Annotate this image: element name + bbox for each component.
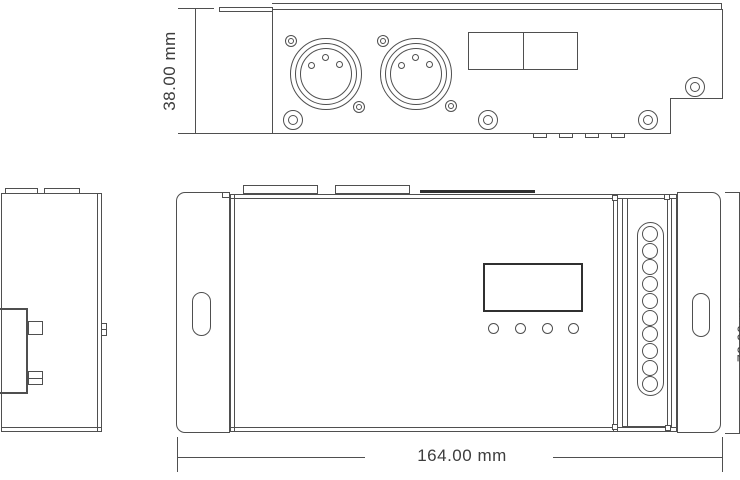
- push-button: [515, 323, 526, 334]
- terminal-panel-inner-line: [667, 198, 668, 427]
- push-button: [488, 323, 499, 334]
- small-screw-icon: [448, 103, 454, 109]
- mounting-slot-right: [692, 293, 710, 337]
- front-body-inner-top-line: [230, 198, 677, 199]
- dimension-end-tick: [178, 8, 214, 9]
- front-body: [230, 194, 677, 432]
- fastener-square: [612, 424, 618, 430]
- xlr-pin: [412, 54, 419, 61]
- small-screw-icon: [380, 38, 386, 44]
- xlr-pin: [322, 54, 329, 61]
- terminal-hole: [642, 276, 658, 292]
- large-screw-icon: [690, 82, 700, 92]
- terminal-hole: [642, 243, 658, 259]
- left-ear-notch: [222, 197, 230, 198]
- terminal-hole: [642, 293, 658, 309]
- front-body-inner-left-line: [234, 194, 235, 432]
- push-button: [542, 323, 553, 334]
- fastener-square: [665, 425, 671, 431]
- technical-drawing-page: 38.00 mm: [0, 0, 740, 480]
- top-view-bottom-tab: [533, 133, 547, 138]
- large-screw-icon: [288, 115, 298, 125]
- top-view-bottom-tab: [559, 133, 573, 138]
- din-clip-top-tab: [28, 321, 43, 335]
- front-top-dark-tab: [420, 190, 535, 193]
- side-view-inner-bottom-line: [1, 427, 102, 428]
- top-view-step-horizontal: [670, 98, 722, 99]
- mounting-slot-left: [192, 292, 211, 336]
- dimension-end-tick: [177, 437, 178, 472]
- front-body-inner-bottom-line: [230, 427, 677, 428]
- terminal-hole: [642, 310, 658, 326]
- top-view-flange-edge: [272, 3, 722, 4]
- terminal-block-divider: [523, 32, 524, 70]
- top-view-left-edge: [272, 9, 273, 133]
- din-clip-bottom-tab-line: [28, 378, 43, 379]
- height-dimension-label: 38.00 mm: [161, 26, 179, 116]
- front-top-tab: [335, 185, 410, 194]
- terminal-hole: [642, 226, 658, 242]
- top-view-bottom-tab: [611, 133, 625, 138]
- small-screw-icon: [356, 104, 362, 110]
- terminal-hole: [642, 360, 658, 376]
- xlr-pin: [426, 61, 433, 68]
- xlr-pin: [336, 61, 343, 68]
- small-screw-icon: [288, 38, 294, 44]
- din-clip-protrusion: [0, 308, 28, 394]
- dimension-end-tick: [725, 433, 740, 434]
- dimension-line: [195, 8, 196, 133]
- side-view-top-tab: [44, 188, 80, 194]
- terminal-hole: [642, 343, 658, 359]
- fastener-square: [612, 195, 618, 201]
- terminal-section-line: [613, 194, 614, 432]
- top-view-left-lip: [219, 7, 273, 12]
- dimension-end-tick: [722, 437, 723, 472]
- terminal-section-line: [617, 194, 618, 432]
- top-view: [0, 0, 740, 160]
- top-view-top-edge: [272, 9, 722, 10]
- side-view-right-notch-line: [101, 329, 107, 330]
- dimension-end-tick: [725, 192, 740, 193]
- top-view-bottom-tab: [585, 133, 599, 138]
- top-view-step-vertical: [670, 98, 671, 134]
- large-screw-icon: [483, 115, 493, 125]
- depth-dimension-label: 72.00 mm: [734, 287, 740, 371]
- dimension-end-tick: [178, 133, 272, 134]
- top-view-right-edge: [722, 9, 723, 99]
- dimension-line: [177, 457, 365, 458]
- fastener-square: [664, 194, 670, 200]
- width-dimension-label: 164.00 mm: [406, 446, 518, 466]
- front-top-tab: [243, 185, 318, 194]
- xlr-pin: [308, 62, 315, 69]
- dimension-line: [553, 457, 723, 458]
- xlr-pin: [398, 62, 405, 69]
- side-view-top-tab: [5, 188, 38, 194]
- large-screw-icon: [643, 115, 653, 125]
- side-view-inner-right-line: [97, 193, 98, 432]
- lcd-display: [483, 263, 583, 312]
- terminal-panel-inner-line: [627, 198, 628, 427]
